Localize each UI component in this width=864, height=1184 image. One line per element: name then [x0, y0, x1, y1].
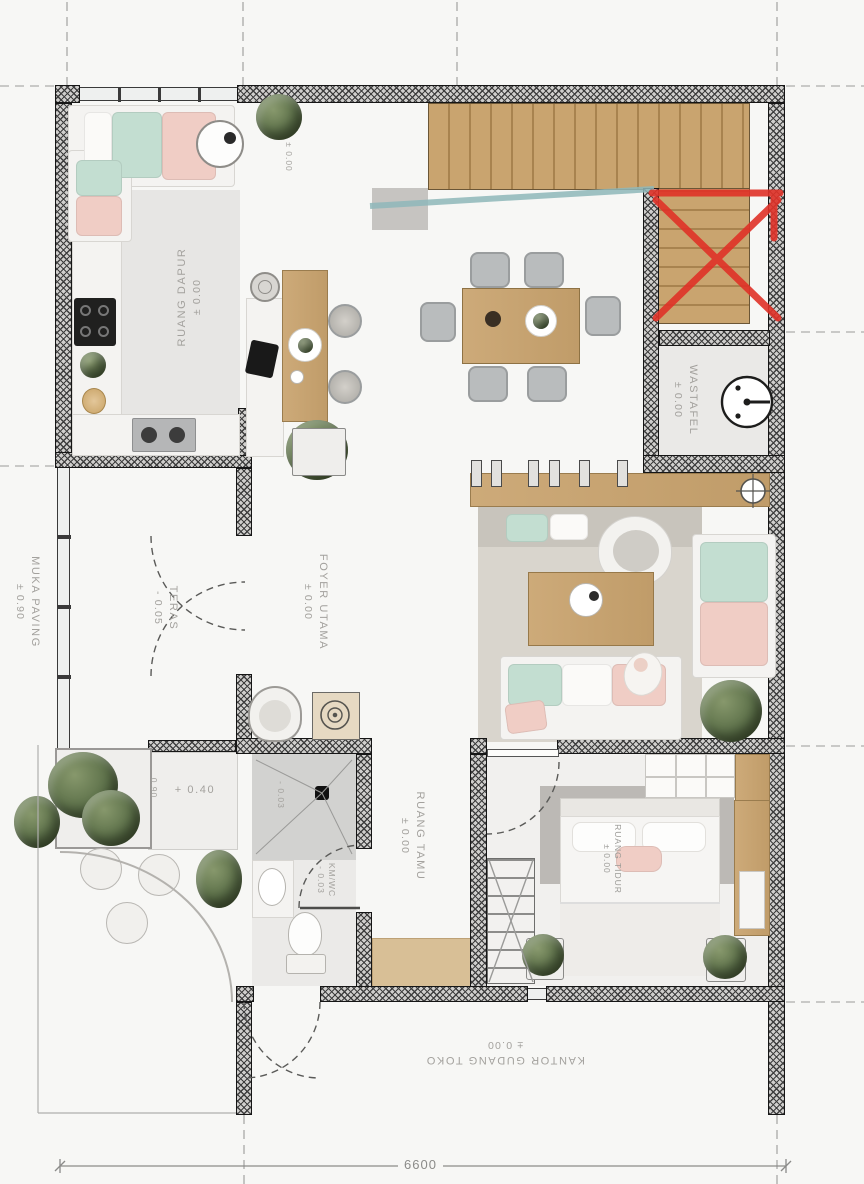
bedroom-desk [734, 800, 770, 936]
step-level-label: + 0.40 [160, 782, 230, 798]
bedside-plant-left [522, 934, 564, 976]
dining-chair-right [585, 296, 621, 336]
room-label-muka-paving: MUKA PAVING ± 0.90 [11, 537, 43, 667]
room-label-hall: RUANG TAMU ± 0.00 [396, 771, 428, 901]
window-bottom [528, 988, 546, 1000]
room-label-bedroom: RUANG TIDUR ± 0.00 [599, 799, 625, 919]
oven-unit [132, 418, 196, 452]
wall-bottom-c [546, 986, 785, 1002]
island-end-plant-pot [292, 428, 346, 476]
stepping-stone-1 [80, 848, 122, 890]
island-tray [250, 272, 280, 302]
family-plant [700, 680, 762, 742]
shower-floor [252, 754, 356, 860]
dining-chair-bottom-1 [468, 366, 508, 402]
wardrobe-white [645, 754, 735, 798]
dining-chair-left [420, 302, 456, 342]
wall-step-top [148, 740, 236, 752]
shower-level-label: - 0.03 [273, 765, 287, 825]
room-label-wastafel: WASTAFEL ± 0.00 [669, 345, 701, 455]
step-platform [148, 752, 238, 850]
wall-bottom-a [236, 986, 254, 1002]
stair-flight-lower [658, 188, 750, 324]
window-teras-left [57, 467, 70, 748]
wall-wastafel-top [659, 330, 770, 346]
stepping-stone-2 [138, 854, 180, 896]
console-slat-2 [491, 460, 502, 487]
sofa-right-cushion-pink [700, 602, 768, 666]
room-label-kantor: KANTOR GUDANG TOKO ± 0.00 [395, 1032, 615, 1072]
sofa-right-cushion-mint [700, 542, 768, 602]
console-slat-5 [579, 460, 590, 487]
family-pillow-mint [506, 514, 548, 542]
lounge-leg-cushion-pink [76, 196, 122, 236]
island-plate [288, 328, 322, 362]
lounge-leg-cushion-mint [76, 160, 122, 196]
console-slat-3 [528, 460, 539, 487]
floor-plan-canvas: RUANG DAPUR ± 0.00 ± 0.00 TERAS - 0.05 F… [0, 0, 864, 1184]
teras-side-table [312, 692, 360, 740]
bedroom-door-leaf [487, 749, 559, 757]
bed-headboard [560, 798, 720, 818]
bar-stool-2 [328, 370, 362, 404]
hall-wood-mat [372, 938, 472, 988]
room-label-foyer: FOYER UTAMA ± 0.00 [299, 532, 331, 672]
wall-family-bottom-b [557, 738, 785, 754]
family-pillow-white [550, 514, 588, 540]
wall-bedroom-left [470, 754, 487, 1002]
planter-level-label: 0.90 [147, 763, 159, 813]
counter-basket [82, 388, 106, 414]
planter-plant-2 [82, 790, 140, 846]
dining-chair-top-1 [470, 252, 510, 288]
room-label-teras: TERAS - 0.05 [149, 563, 181, 653]
wall-stair-wastafel [643, 188, 659, 458]
coffee-table [528, 572, 654, 646]
wall-top-left-corner [55, 85, 80, 103]
dining-chair-top-2 [524, 252, 564, 288]
stair-flight-upper [428, 103, 750, 190]
dining-chair-bottom-2 [527, 366, 567, 402]
wall-foyer-upper [236, 468, 252, 536]
stair-plant [256, 94, 302, 140]
window-top-left [80, 87, 237, 101]
shower-drain [315, 786, 329, 800]
path-shrub [196, 850, 242, 908]
sofa-bottom-cushion-white [562, 664, 612, 706]
toilet [286, 912, 326, 976]
wall-kantor-left [236, 1002, 252, 1115]
edge-shrub [14, 796, 60, 848]
wardrobe-wood [735, 754, 770, 802]
stepping-stone-3 [106, 902, 148, 944]
dimension-width-label: 6600 [398, 1157, 443, 1172]
vanity-sink [258, 868, 286, 906]
bar-stool-1 [328, 304, 362, 338]
island-cup [290, 370, 304, 384]
room-label-bathroom: KM/WC - 0.03 [314, 840, 338, 920]
island-counter [246, 298, 284, 457]
dining-table [462, 288, 580, 364]
room-label-kitchen: RUANG DAPUR ± 0.00 [173, 217, 207, 377]
bed-blanket [560, 902, 720, 976]
console-slat-1 [471, 460, 482, 487]
console-slat-6 [617, 460, 628, 487]
wall-bath-right-a [356, 754, 372, 849]
sofa-bottom-throw-pillow [504, 699, 548, 734]
wall-top [237, 85, 785, 103]
wall-bottom-b [320, 986, 528, 1002]
counter-plant [80, 352, 106, 378]
wall-bath-top [236, 738, 372, 754]
bedside-plant-right [703, 935, 747, 979]
stair-level-label: ± 0.00 [281, 127, 295, 187]
console-slat-4 [549, 460, 560, 487]
stair-landing [372, 188, 428, 230]
wall-family-top [643, 455, 785, 473]
cooktop [74, 298, 116, 346]
lounge-round-table [196, 120, 244, 168]
wall-family-bottom-a [470, 738, 487, 754]
teras-tub-chair [248, 686, 302, 742]
